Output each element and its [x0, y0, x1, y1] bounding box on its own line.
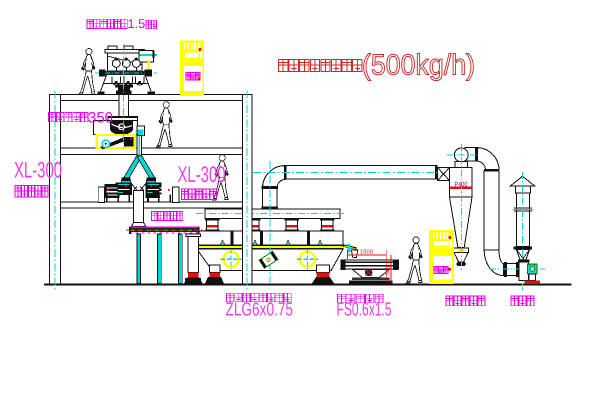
- svg-text:1.5: 1.5: [128, 16, 146, 31]
- svg-text:P400: P400: [455, 182, 468, 189]
- svg-text:540: 540: [386, 266, 392, 275]
- svg-text:XL-300: XL-300: [14, 157, 62, 182]
- svg-text:(500kg/h): (500kg/h): [362, 50, 475, 82]
- svg-text:XL-300: XL-300: [178, 162, 226, 187]
- svg-text:350: 350: [88, 110, 113, 127]
- svg-text:ZLG6x0.75: ZLG6x0.75: [226, 299, 294, 320]
- svg-text:FS0.6x1.5: FS0.6x1.5: [337, 299, 392, 320]
- svg-text:1500: 1500: [360, 248, 373, 255]
